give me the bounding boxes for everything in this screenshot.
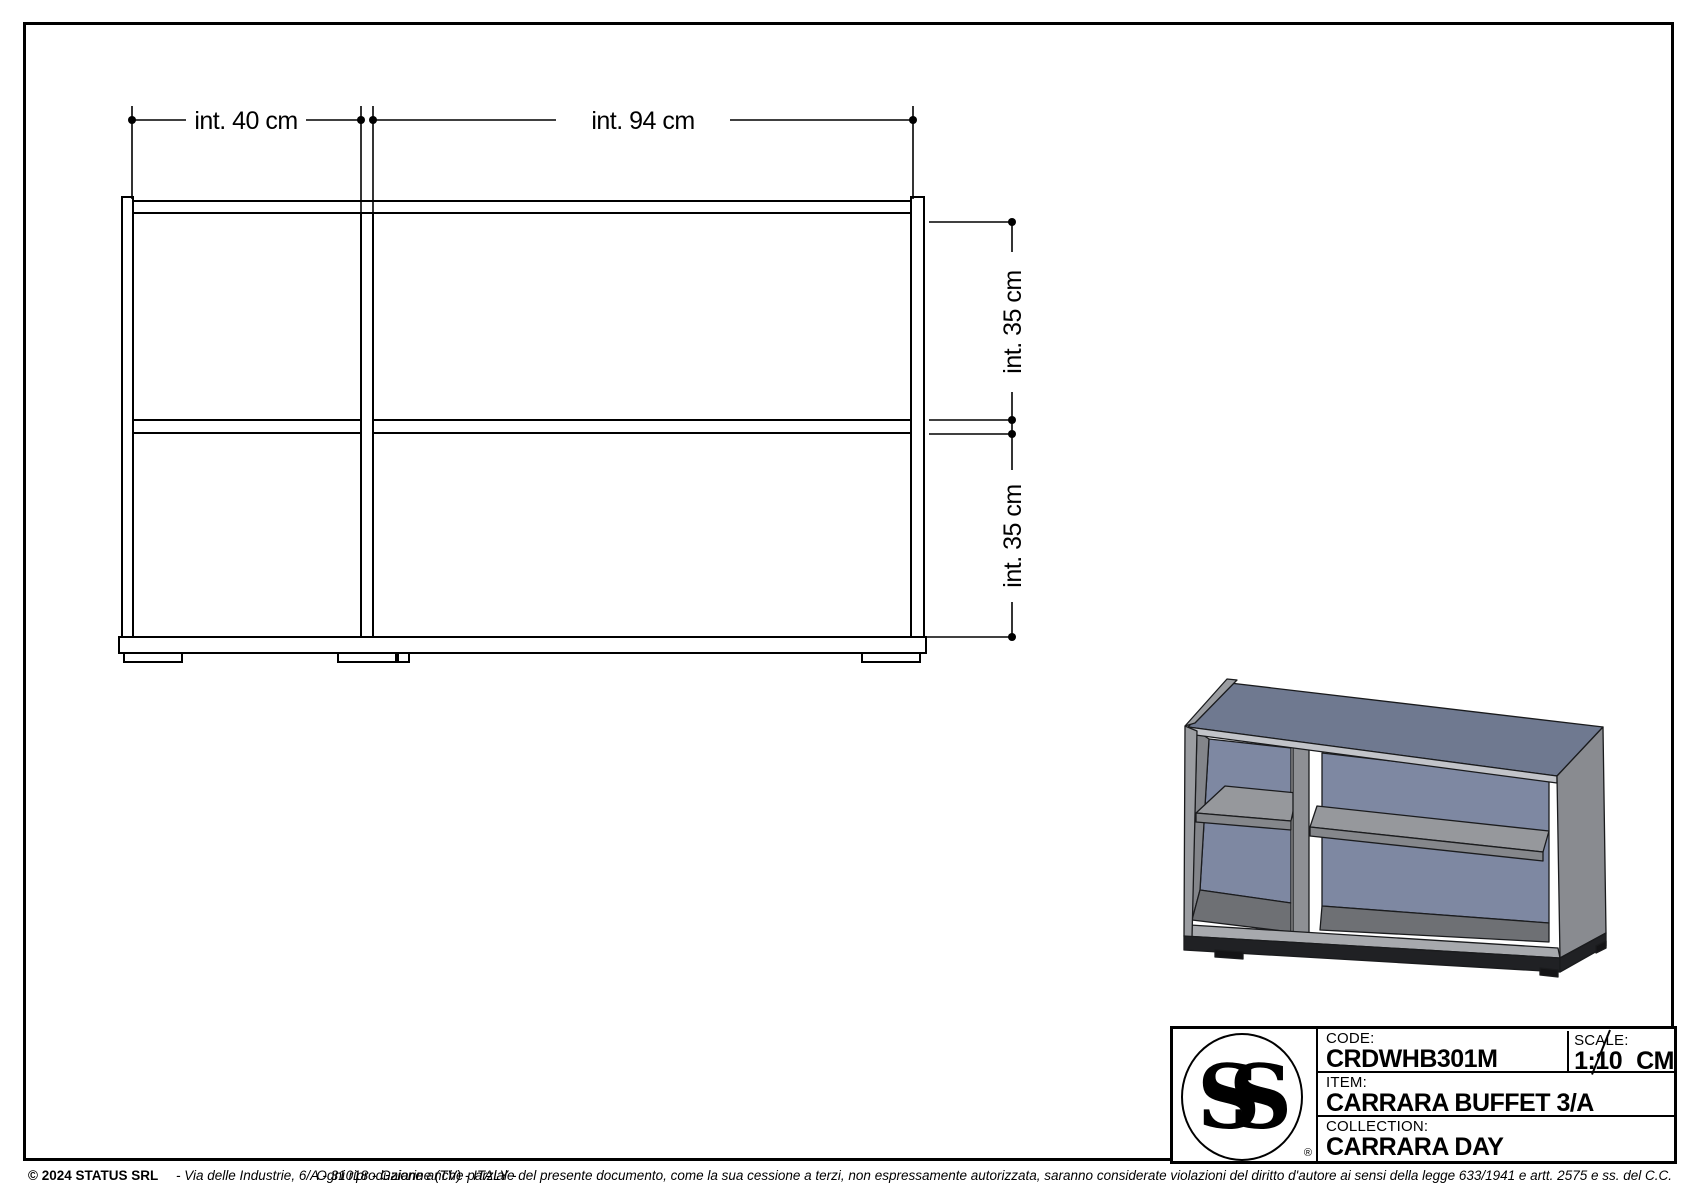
cabinet-foot [862, 653, 920, 662]
cabinet-foot [124, 653, 182, 662]
item-value: CARRARA BUFFET 3/A [1326, 1091, 1674, 1116]
cabinet-bottom-board [119, 637, 926, 653]
title-block: SS ® CODE: CRDWHB301M SCALE: 1:10 CM [1170, 1026, 1677, 1164]
cabinet-shelf-right [373, 420, 911, 433]
scale-unit: CM [1636, 1049, 1674, 1074]
registered-trademark: ® [1304, 1147, 1312, 1159]
render-divider [1293, 740, 1309, 941]
front-view-drawing [119, 197, 926, 662]
code-value: CRDWHB301M [1326, 1047, 1567, 1072]
scale-cell: SCALE: 1:10 CM [1567, 1031, 1674, 1071]
legal-notice: Ogni riproduzione anche parziale del pre… [316, 1168, 1672, 1183]
cabinet-foot [398, 653, 409, 662]
cabinet-shelf-left [133, 420, 361, 433]
technical-drawing-canvas: int. 40 cm int. 94 cm int. 35 cm int. 35… [0, 0, 1700, 1202]
dim-label-height-upper: int. 35 cm [999, 270, 1027, 373]
dim-label-height-lower: int. 35 cm [999, 484, 1027, 587]
dim-label-width-left: int. 40 cm [194, 107, 297, 135]
item-row: ITEM: CARRARA BUFFET 3/A [1318, 1073, 1674, 1117]
drawing-sheet: int. 40 cm int. 94 cm int. 35 cm int. 35… [0, 0, 1700, 1202]
cabinet-top-panel [133, 201, 911, 213]
render-foot [1215, 950, 1243, 959]
code-cell: CODE: CRDWHB301M [1326, 1031, 1567, 1071]
dim-label-width-right: int. 94 cm [591, 107, 694, 135]
company-logo: SS [1181, 1033, 1303, 1161]
cabinet-right-panel [911, 197, 924, 637]
logo-monogram: SS [1197, 1053, 1262, 1141]
cabinet-left-panel [122, 197, 133, 637]
footer: © 2024 STATUS SRL - Via delle Industrie,… [0, 1168, 1700, 1192]
cabinet-divider [361, 213, 373, 637]
code-row: CODE: CRDWHB301M SCALE: 1:10 CM [1318, 1029, 1674, 1073]
cabinet-foot [338, 653, 396, 662]
collection-value: CARRARA DAY [1326, 1135, 1674, 1160]
title-block-fields: CODE: CRDWHB301M SCALE: 1:10 CM ITEM: CA… [1318, 1029, 1674, 1161]
collection-row: COLLECTION: CARRARA DAY [1318, 1117, 1674, 1159]
copyright-text: © 2024 STATUS SRL [28, 1168, 158, 1183]
logo-cell: SS ® [1173, 1029, 1318, 1161]
cabinet-3d-render [1184, 679, 1606, 977]
render-foot [1540, 968, 1558, 977]
